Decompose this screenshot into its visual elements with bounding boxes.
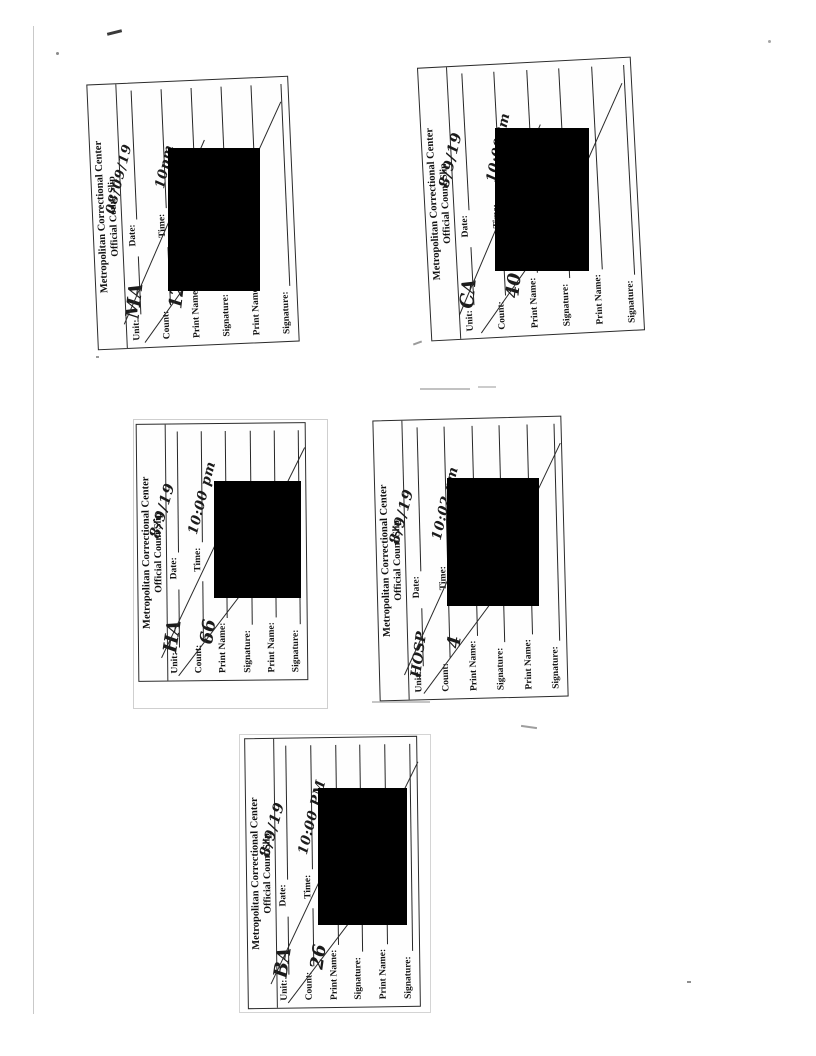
signature-row: Signature: bbox=[271, 84, 292, 334]
scan-artifact bbox=[96, 356, 99, 358]
unit-label: Unit: bbox=[170, 652, 180, 673]
redaction-box bbox=[214, 481, 301, 598]
scan-artifact bbox=[420, 388, 470, 390]
unit-label: Unit: bbox=[465, 310, 476, 332]
signature-row: Signature: bbox=[544, 424, 561, 689]
print-name-line bbox=[589, 67, 603, 269]
print-name-label: Print Name: bbox=[593, 274, 606, 325]
signature-label: Signature: bbox=[550, 646, 561, 689]
signature-line bbox=[278, 84, 290, 286]
redaction-box bbox=[495, 128, 589, 271]
scan-artifact bbox=[56, 52, 59, 55]
count-line bbox=[446, 600, 451, 658]
print-name-label: Print Name: bbox=[528, 277, 541, 328]
date-label: Date: bbox=[127, 224, 138, 247]
redaction-box bbox=[318, 788, 407, 925]
unit-label: Unit: bbox=[279, 979, 289, 1000]
signature-label: Signature: bbox=[221, 294, 233, 337]
signature-line bbox=[621, 65, 635, 275]
signature-label: Signature: bbox=[291, 630, 301, 673]
signature-label: Signature: bbox=[281, 291, 293, 334]
scan-artifact bbox=[413, 341, 422, 346]
time-label: Time: bbox=[193, 548, 203, 572]
print-name-label: Print Name: bbox=[523, 639, 534, 690]
signature-label: Signature: bbox=[625, 280, 637, 323]
signature-label: Signature: bbox=[403, 956, 414, 999]
count-label: Count: bbox=[497, 301, 508, 330]
print-name-label: Print Name: bbox=[378, 949, 389, 1000]
count-value: 66 bbox=[196, 618, 220, 646]
print-name-label: Print Name: bbox=[468, 640, 479, 691]
signature-label: Signature: bbox=[354, 957, 365, 1000]
scan-artifact bbox=[478, 386, 496, 388]
count-value: 26 bbox=[307, 943, 331, 971]
print-name-label: Print Name: bbox=[266, 622, 277, 672]
scan-artifact bbox=[107, 29, 122, 36]
signature-row: Signature: bbox=[614, 65, 637, 323]
unit-value: BA bbox=[269, 946, 295, 980]
redaction-box bbox=[168, 148, 260, 291]
scan-artifact bbox=[768, 40, 771, 43]
slip-header: Metropolitan Correctional Center Officia… bbox=[373, 421, 409, 701]
signature-label: Signature: bbox=[496, 648, 507, 691]
scanned-page: Metropolitan Correctional Center Officia… bbox=[0, 0, 816, 1056]
date-label: Date: bbox=[278, 884, 288, 906]
date-label: Date: bbox=[411, 576, 422, 598]
print-name-label: Print Name: bbox=[250, 285, 262, 336]
date-line bbox=[415, 427, 422, 571]
redaction-box bbox=[447, 478, 539, 606]
scan-artifact bbox=[521, 725, 537, 729]
signature-label: Signature: bbox=[242, 630, 252, 673]
signature-label: Signature: bbox=[561, 283, 573, 326]
date-label: Date: bbox=[169, 557, 179, 579]
page-edge-line bbox=[33, 26, 34, 1014]
unit-label: Unit: bbox=[132, 319, 143, 341]
date-label: Date: bbox=[460, 215, 471, 238]
print-name-label: Print Name: bbox=[218, 623, 229, 673]
print-name-label: Print Name: bbox=[329, 950, 340, 1001]
scan-artifact bbox=[687, 981, 691, 983]
print-name-label: Print Name: bbox=[190, 287, 202, 338]
count-label: Count: bbox=[304, 972, 314, 1001]
